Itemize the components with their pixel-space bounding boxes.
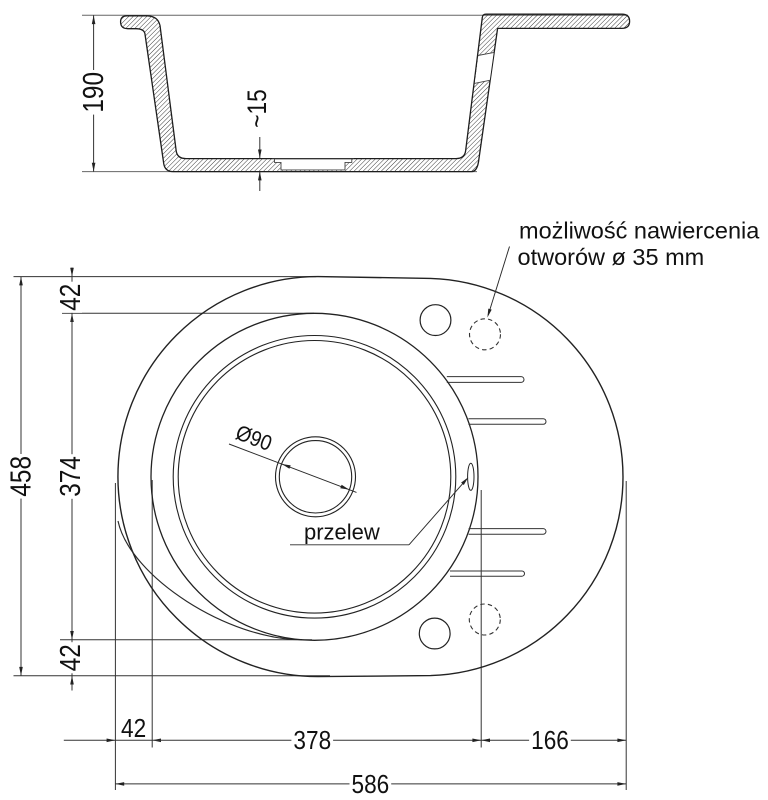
svg-text:190: 190	[77, 72, 109, 113]
svg-text:przelew: przelew	[304, 520, 380, 545]
svg-text:586: 586	[352, 770, 390, 799]
svg-text:42: 42	[54, 284, 86, 311]
svg-text:378: 378	[293, 727, 331, 756]
svg-text:166: 166	[531, 727, 569, 756]
svg-text:42: 42	[121, 715, 146, 744]
svg-text:~15: ~15	[242, 89, 272, 127]
svg-text:otworów ø 35 mm: otworów ø 35 mm	[518, 244, 705, 270]
svg-text:374: 374	[54, 456, 86, 497]
svg-text:możliwość nawiercenia: możliwość nawiercenia	[519, 217, 760, 243]
svg-text:42: 42	[54, 644, 86, 671]
svg-text:458: 458	[5, 456, 37, 497]
